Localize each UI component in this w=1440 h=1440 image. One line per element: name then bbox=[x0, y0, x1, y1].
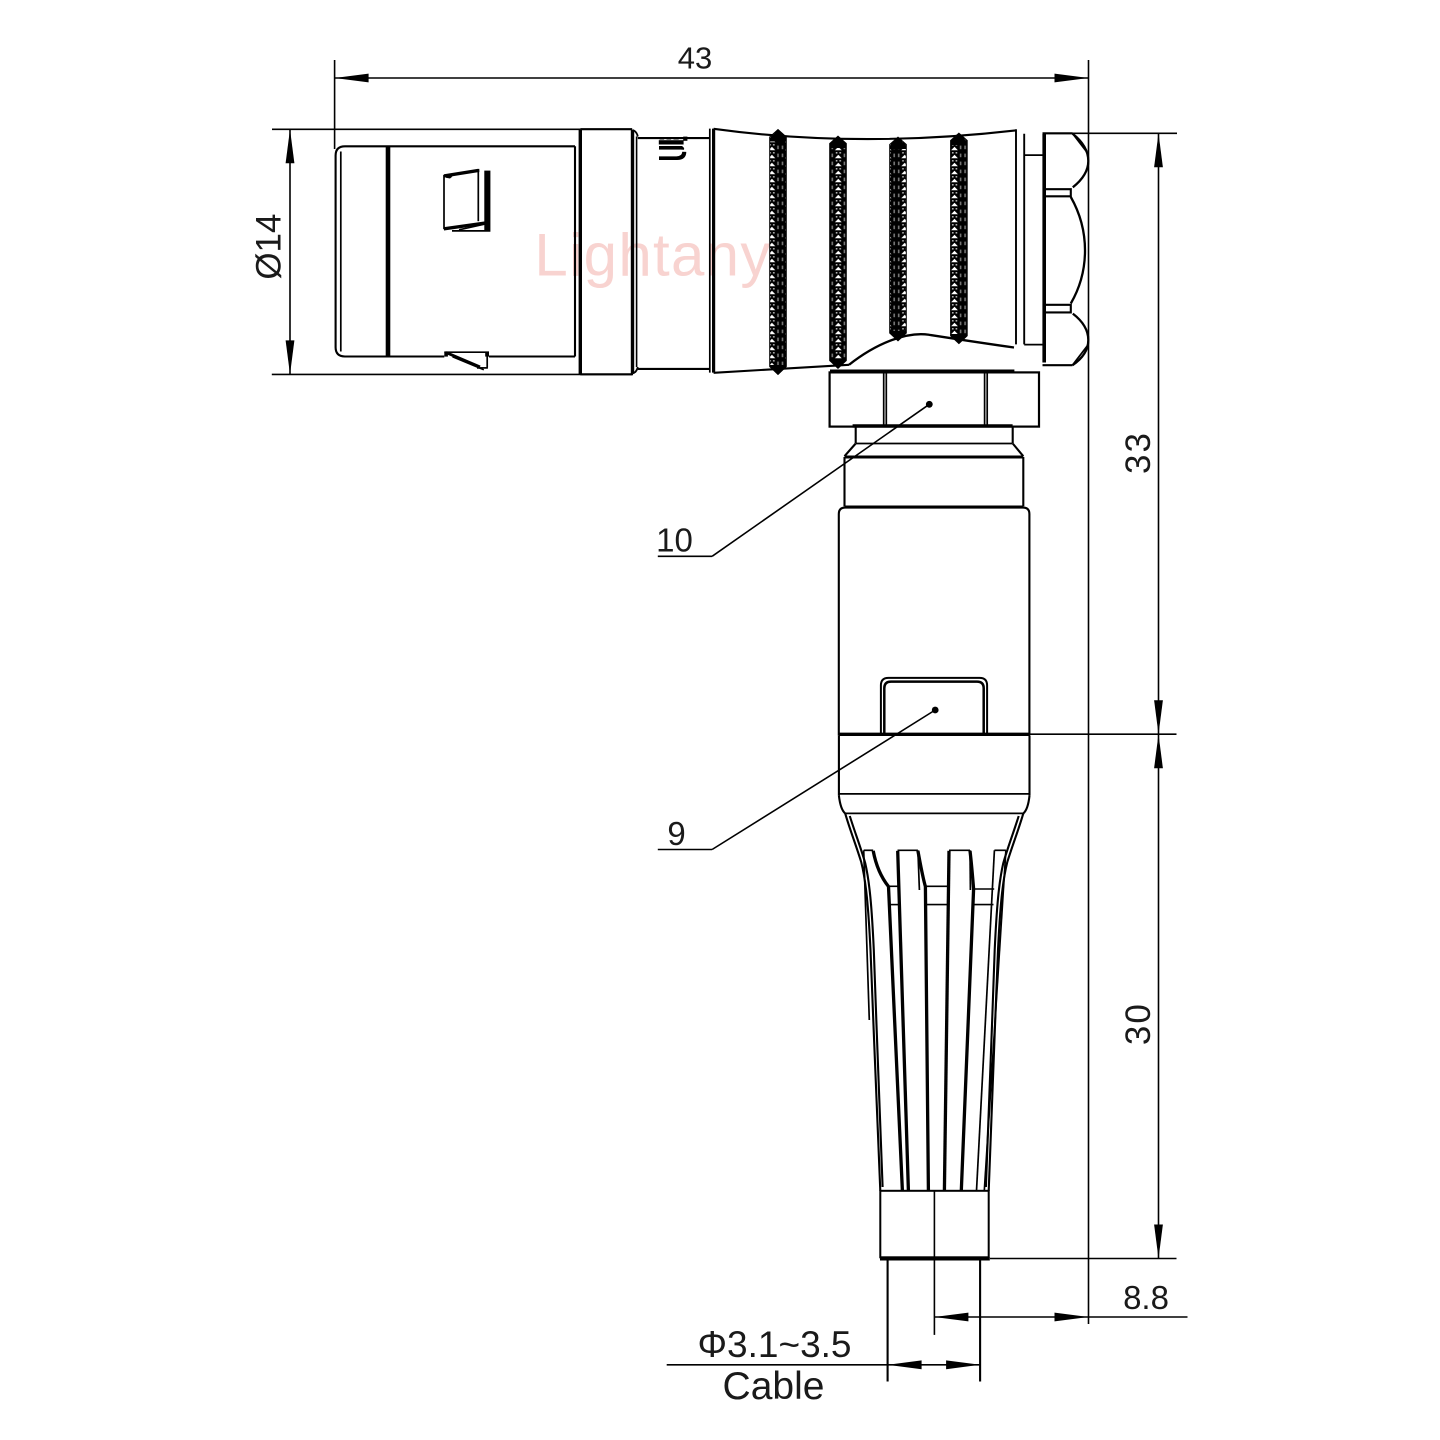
svg-text:Cable: Cable bbox=[723, 1365, 825, 1408]
svg-text:43: 43 bbox=[678, 41, 712, 76]
svg-text:8.8: 8.8 bbox=[1123, 1279, 1169, 1316]
svg-text:Ø14: Ø14 bbox=[249, 214, 288, 280]
svg-text:Lightany: Lightany bbox=[534, 221, 771, 288]
svg-text:Φ3.1~3.5: Φ3.1~3.5 bbox=[698, 1324, 852, 1365]
svg-text:10: 10 bbox=[656, 522, 693, 559]
svg-text:9: 9 bbox=[667, 815, 685, 852]
svg-text:33: 33 bbox=[1119, 431, 1158, 474]
svg-text:30: 30 bbox=[1119, 1002, 1158, 1045]
